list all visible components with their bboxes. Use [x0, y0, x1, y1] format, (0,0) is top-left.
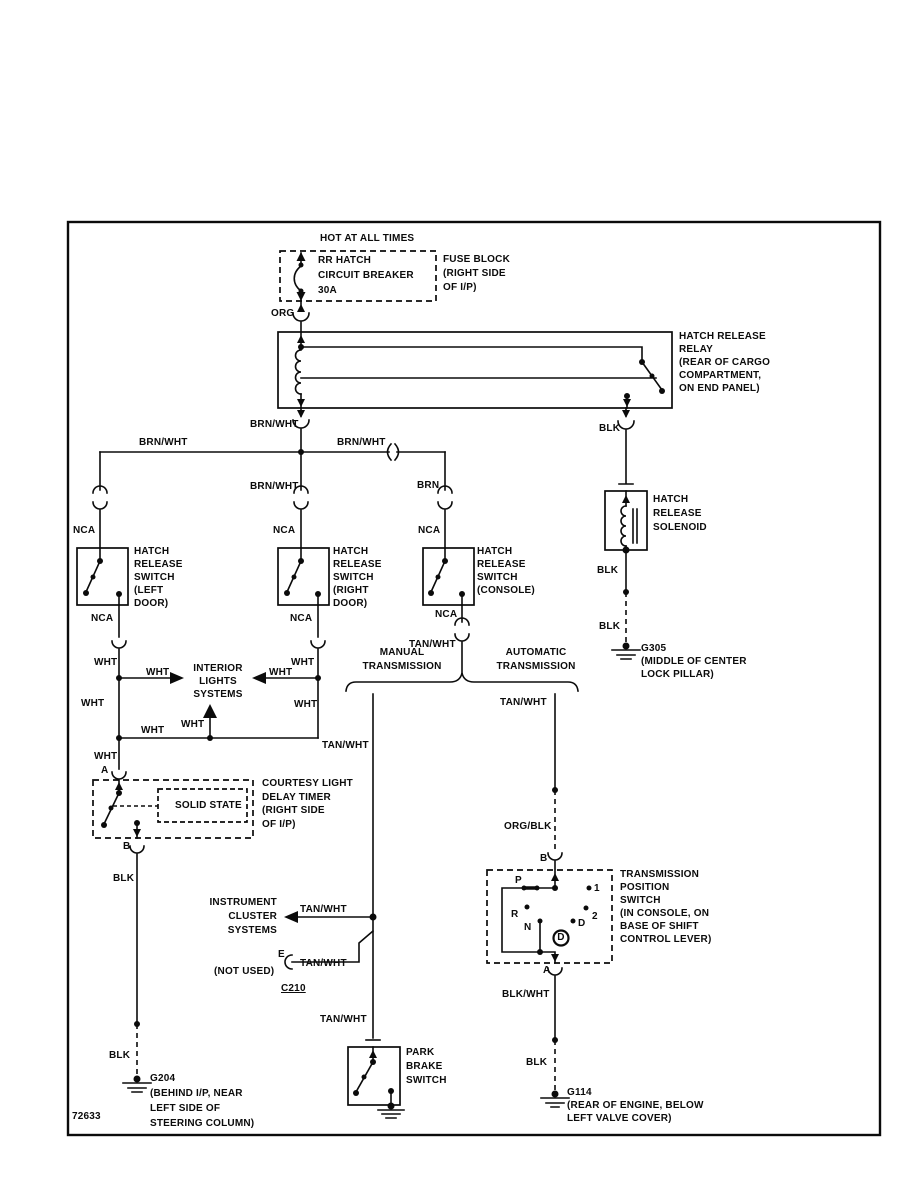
hatch-release-relay-symbol — [278, 332, 672, 408]
timer-note: COURTESY LIGHT DELAY TIMER (RIGHT SIDE O… — [262, 777, 353, 831]
solid-state-label: SOLID STATE — [175, 799, 242, 812]
wire-brnwht-relay-out: BRN/WHT — [250, 418, 299, 431]
diagram-id: 72633 — [72, 1110, 101, 1123]
wire-wht-arrow-up: WHT — [181, 718, 204, 731]
wire-blk-tps: BLK — [526, 1056, 547, 1069]
timer-terminal-a: A — [101, 764, 108, 777]
c210-terminal-e: E — [278, 948, 285, 961]
connector-c210-label: C210 — [281, 982, 306, 995]
circuit-breaker-label: RR HATCH CIRCUIT BREAKER 30A — [318, 253, 414, 298]
wire-wht-arrow-left: WHT — [146, 666, 169, 679]
tps-terminal-b: B — [540, 852, 547, 865]
tps-position-r: R — [511, 908, 518, 921]
wire-wht-6: WHT — [94, 750, 117, 763]
relay-note: HATCH RELEASE RELAY (REAR OF CARGO COMPA… — [679, 330, 770, 395]
wire-blk-timer-2: BLK — [109, 1049, 130, 1062]
park-brake-note: PARK BRAKE SWITCH — [406, 1046, 447, 1088]
hatch-release-switch-console-symbol — [423, 548, 474, 605]
ground-g114-note: G114 (REAR OF ENGINE, BELOW LEFT VALVE C… — [567, 1086, 704, 1125]
wire-orgblk-label: ORG/BLK — [504, 820, 552, 833]
wire-nca-mid-top: NCA — [273, 524, 295, 537]
wire-wht-1: WHT — [94, 656, 117, 669]
tps-note: TRANSMISSION POSITION SWITCH (IN CONSOLE… — [620, 868, 712, 946]
park-brake-switch-symbol — [348, 1047, 404, 1118]
interior-lights-title: INTERIOR LIGHTS SYSTEMS — [178, 662, 258, 701]
tps-position-p: P — [515, 874, 522, 887]
wire-wht-arrow-right: WHT — [269, 666, 292, 679]
wiring-diagram-page: HOT AT ALL TIMES RR HATCH CIRCUIT BREAKE… — [0, 0, 918, 1188]
hatch-release-switch-right-symbol — [278, 548, 329, 605]
tps-position-2: 2 — [592, 910, 598, 923]
fuse-block-note: FUSE BLOCK (RIGHT SIDE OF I/P) — [443, 253, 510, 295]
hatch-release-switch-left-symbol — [77, 548, 128, 605]
wire-nca-console-bot: NCA — [435, 608, 457, 621]
switch-left-note: HATCH RELEASE SWITCH (LEFT DOOR) — [134, 545, 183, 610]
wire-wht-2: WHT — [291, 656, 314, 669]
hot-at-all-times-label: HOT AT ALL TIMES — [320, 232, 414, 245]
instrument-cluster-title: INSTRUMENT CLUSTER SYSTEMS — [177, 896, 277, 938]
wire-blk-solenoid-top: BLK — [599, 422, 620, 435]
tps-position-d-selected: D — [555, 931, 567, 944]
tps-terminal-a: A — [543, 964, 550, 977]
solenoid-note: HATCH RELEASE SOLENOID — [653, 493, 707, 535]
ground-g305-note: G305 (MIDDLE OF CENTER LOCK PILLAR) — [641, 642, 747, 681]
wire-tanwht-park: TAN/WHT — [320, 1013, 367, 1026]
wire-wht-5: WHT — [141, 724, 164, 737]
switch-console-note: HATCH RELEASE SWITCH (CONSOLE) — [477, 545, 535, 597]
wire-tanwht-cluster-arrow: TAN/WHT — [300, 903, 347, 916]
switch-right-note: HATCH RELEASE SWITCH (RIGHT DOOR) — [333, 545, 382, 610]
wire-wht-3: WHT — [81, 697, 104, 710]
not-used-label: (NOT USED) — [214, 965, 274, 978]
wire-tanwht-manual-1: TAN/WHT — [322, 739, 369, 752]
wire-nca-left-top: NCA — [73, 524, 95, 537]
tps-position-d: D — [578, 917, 585, 930]
wire-nca-mid-bot: NCA — [290, 612, 312, 625]
wire-nca-left-bot: NCA — [91, 612, 113, 625]
wire-tanwht-auto: TAN/WHT — [500, 696, 547, 709]
wire-brnwht-mid: BRN/WHT — [250, 480, 299, 493]
wire-blk-solenoid-mid: BLK — [597, 564, 618, 577]
wire-blk-solenoid-bot: BLK — [599, 620, 620, 633]
wire-tanwht-c210: TAN/WHT — [300, 957, 347, 970]
wire-blk-timer-1: BLK — [113, 872, 134, 885]
automatic-transmission-label: AUTOMATIC TRANSMISSION — [486, 646, 586, 674]
wire-nca-console-top: NCA — [418, 524, 440, 537]
wire-wht-4: WHT — [294, 698, 317, 711]
wire-blkwht-label: BLK/WHT — [502, 988, 550, 1001]
ground-g204-note: G204 (BEHIND I/P, NEAR LEFT SIDE OF STEE… — [150, 1071, 254, 1131]
tps-position-n: N — [524, 921, 531, 934]
wire-brnwht-left: BRN/WHT — [139, 436, 188, 449]
wire-org-label: ORG — [271, 307, 294, 320]
manual-transmission-label: MANUAL TRANSMISSION — [356, 646, 448, 674]
wire-brn-console: BRN — [417, 479, 439, 492]
tps-position-1: 1 — [594, 882, 600, 895]
timer-terminal-b: B — [123, 840, 130, 853]
wire-brnwht-right: BRN/WHT — [337, 436, 386, 449]
transmission-position-switch-symbol — [487, 694, 612, 1107]
